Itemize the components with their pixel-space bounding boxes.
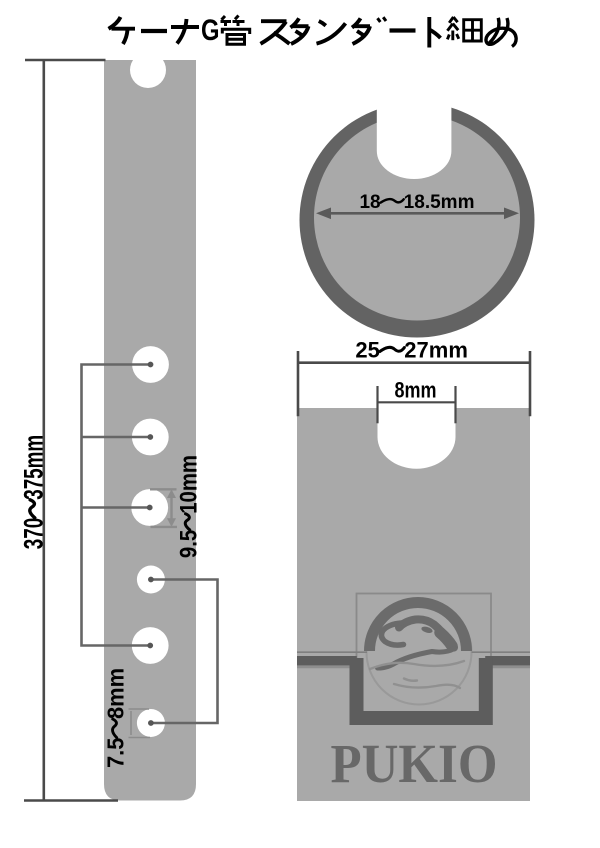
svg-text:18.5mm: 18.5mm (404, 192, 475, 213)
svg-text:27mm: 27mm (404, 338, 468, 363)
svg-text:7.5: 7.5 (102, 737, 128, 768)
svg-text:9.5: 9.5 (176, 530, 203, 558)
svg-text:8mm: 8mm (102, 668, 128, 719)
svg-text:8mm: 8mm (395, 378, 437, 403)
svg-text:G: G (201, 14, 220, 47)
svg-text:370: 370 (19, 518, 49, 550)
svg-text:PUKIO: PUKIO (331, 733, 498, 794)
svg-text:18: 18 (360, 192, 381, 213)
svg-text:375mm: 375mm (19, 435, 49, 500)
svg-text:10mm: 10mm (176, 455, 203, 514)
svg-text:25: 25 (355, 338, 380, 363)
